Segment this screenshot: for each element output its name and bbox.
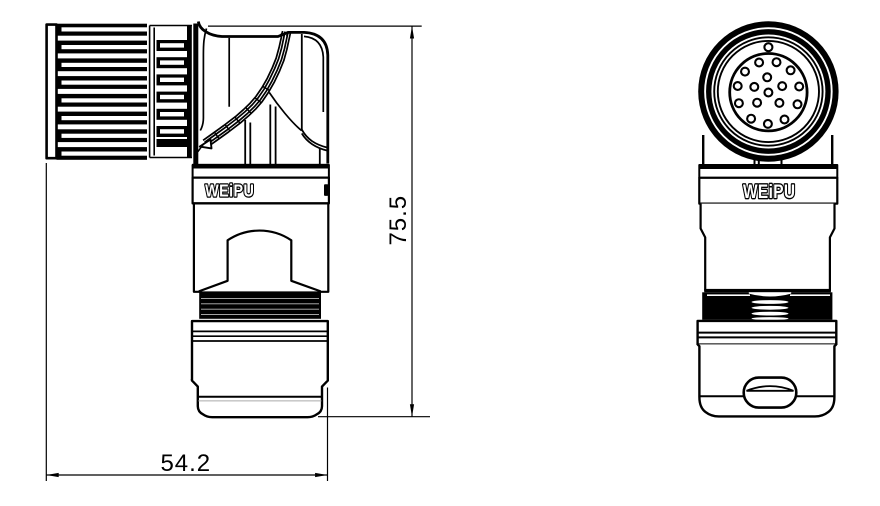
svg-text:WEiPU: WEiPU [205, 182, 254, 201]
svg-text:54.2: 54.2 [160, 450, 211, 477]
svg-text:WEiPU: WEiPU [743, 180, 795, 202]
svg-text:75.5: 75.5 [385, 195, 412, 246]
